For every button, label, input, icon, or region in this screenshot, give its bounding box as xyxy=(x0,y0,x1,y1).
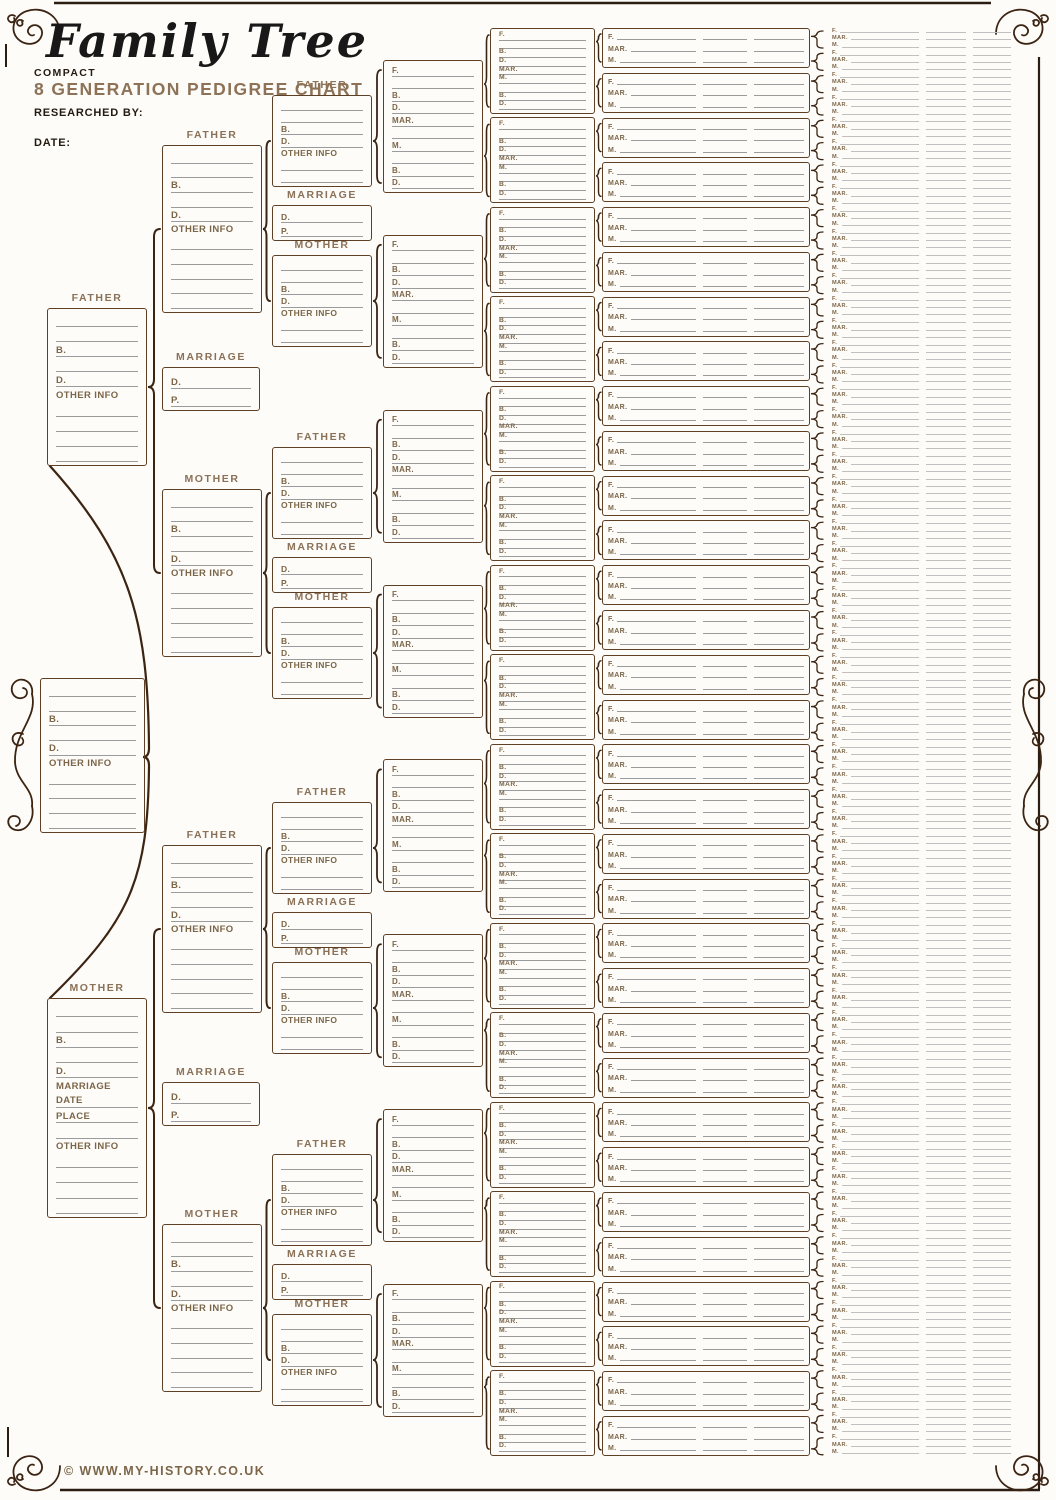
field-label: D. xyxy=(499,147,507,154)
field-line xyxy=(754,599,804,600)
field-label: F. xyxy=(832,654,837,660)
field-row: M. xyxy=(832,623,1011,630)
field-label: MAR. xyxy=(832,1309,848,1315)
field-row: MAR. xyxy=(832,571,1011,578)
field-line xyxy=(842,984,919,985)
field-row: F. xyxy=(832,810,1011,817)
field-line xyxy=(754,442,804,443)
field-line xyxy=(851,1067,919,1068)
field-row xyxy=(499,621,586,630)
field-label: D. xyxy=(499,595,507,602)
field-row xyxy=(392,426,474,439)
field-line xyxy=(842,404,919,405)
field-row: MAR. xyxy=(832,303,1011,310)
field-line xyxy=(703,554,747,555)
field-line xyxy=(973,613,1011,614)
field-line xyxy=(703,286,747,287)
field-row: F. xyxy=(832,1301,1011,1308)
field-line xyxy=(842,850,919,851)
field-line xyxy=(754,51,804,52)
field-label: MAR. xyxy=(499,335,518,342)
field-label: F. xyxy=(608,661,614,668)
field-label: MAR. xyxy=(832,1130,848,1136)
field-line xyxy=(617,800,696,801)
field-row: B. xyxy=(392,89,474,102)
field-line xyxy=(926,352,966,353)
field-line xyxy=(631,767,697,768)
field-row: D. xyxy=(392,626,474,639)
field-label: B. xyxy=(499,1302,507,1309)
field-line xyxy=(703,1349,747,1350)
field-line xyxy=(617,1024,696,1025)
field-line xyxy=(754,62,804,63)
field-label: F. xyxy=(832,185,837,191)
gen8-couple-entry: F.MAR.M. xyxy=(832,1278,1013,1300)
field-line xyxy=(631,409,697,410)
field-line xyxy=(973,1022,1011,1023)
field-line xyxy=(926,1297,966,1298)
field-row xyxy=(171,1243,253,1258)
field-label: MAR. xyxy=(608,1120,628,1127)
field-line xyxy=(926,635,966,636)
field-row xyxy=(281,878,363,890)
field-line xyxy=(973,426,1011,427)
field-label: MAR. xyxy=(499,1140,518,1147)
field-row: MAR. xyxy=(832,236,1011,243)
field-row: M. xyxy=(832,1092,1011,1099)
field-line xyxy=(926,702,966,703)
field-line xyxy=(973,151,1011,152)
field-line xyxy=(926,1334,966,1335)
field-row xyxy=(171,164,253,179)
field-label: F. xyxy=(832,1391,837,1397)
gen6-couple-box: F.B.D.MAR.M.B.D. xyxy=(490,654,595,740)
field-row: F. xyxy=(832,1256,1011,1263)
field-line xyxy=(754,152,804,153)
field-row: MAR. xyxy=(499,67,586,76)
field-line xyxy=(973,77,1011,78)
field-row: B. xyxy=(499,407,586,416)
field-label: MAR. xyxy=(832,58,848,64)
field-line xyxy=(973,605,1011,606)
field-label: B. xyxy=(499,1435,507,1442)
field-row: B. xyxy=(499,49,586,58)
field-line xyxy=(842,180,919,181)
gen4-father-box-title: FATHER xyxy=(260,787,384,798)
field-line xyxy=(617,174,696,175)
field-line xyxy=(754,857,804,858)
field-line xyxy=(842,627,919,628)
field-label: M. xyxy=(499,612,507,619)
field-line xyxy=(703,84,747,85)
field-line xyxy=(926,1044,966,1045)
researched-by-label: RESEARCHED BY: xyxy=(34,107,143,119)
field-line xyxy=(973,1260,1011,1261)
field-label: MAR. xyxy=(832,415,848,421)
field-line xyxy=(754,554,804,555)
field-line xyxy=(973,1453,1011,1454)
field-line xyxy=(840,121,919,122)
field-line xyxy=(973,1252,1011,1253)
field-label: D. xyxy=(281,213,290,222)
field-line xyxy=(973,307,1011,308)
field-row: MAR. xyxy=(499,425,586,434)
field-label: MAR. xyxy=(608,941,628,948)
gen6-couple-box: F.B.D.MAR.M.B.D. xyxy=(490,1281,595,1367)
gen8-couple-entry: F.MAR.M. xyxy=(832,95,1013,117)
field-label: F. xyxy=(832,564,837,570)
field-row: M. xyxy=(608,1352,804,1363)
field-label: F. xyxy=(832,631,837,637)
field-row: M. xyxy=(608,322,804,333)
field-line xyxy=(620,62,696,63)
field-label: M. xyxy=(832,1048,839,1054)
field-label: F. xyxy=(608,840,614,847)
field-line xyxy=(842,1185,919,1186)
field-row xyxy=(281,511,363,523)
field-line xyxy=(754,677,804,678)
field-row: M. xyxy=(832,1137,1011,1144)
field-row: F. xyxy=(832,229,1011,236)
field-label: OTHER INFO xyxy=(281,1208,337,1217)
field-row: B. xyxy=(499,987,586,996)
field-line xyxy=(973,1134,1011,1135)
field-line xyxy=(840,1260,919,1261)
field-row: MAR. xyxy=(832,817,1011,824)
field-label: M. xyxy=(832,847,839,853)
field-row xyxy=(281,1026,363,1038)
field-line xyxy=(703,465,747,466)
field-label: MAR. xyxy=(832,1041,848,1047)
field-line xyxy=(926,270,966,271)
field-label: B. xyxy=(499,765,507,772)
field-line xyxy=(703,185,747,186)
field-row: MAR. xyxy=(499,1319,586,1328)
field-line xyxy=(617,397,696,398)
field-line xyxy=(926,881,966,882)
field-label: F. xyxy=(832,319,837,325)
field-label: OTHER INFO xyxy=(281,309,337,318)
field-row: M. xyxy=(832,377,1011,384)
gen8-couple-entry: F.MAR.M. xyxy=(832,854,1013,876)
field-label: B. xyxy=(392,791,401,799)
field-label: B. xyxy=(281,125,290,134)
field-line xyxy=(754,84,804,85)
field-line xyxy=(926,1439,966,1440)
field-row: MAR. xyxy=(499,156,586,165)
field-label: MAR. xyxy=(832,527,848,533)
field-row: MAR. xyxy=(608,624,804,635)
field-label: MAR. xyxy=(392,1166,414,1174)
field-row xyxy=(171,936,253,951)
field-label: DATE xyxy=(56,1096,83,1106)
field-label: M. xyxy=(832,490,839,496)
field-row xyxy=(499,846,586,855)
field-line xyxy=(754,543,804,544)
field-row: MAR. xyxy=(392,639,474,652)
field-line xyxy=(973,1074,1011,1075)
field-line xyxy=(973,114,1011,115)
field-line xyxy=(926,203,966,204)
field-row xyxy=(392,152,474,165)
field-label: M. xyxy=(499,433,507,440)
field-line xyxy=(842,136,919,137)
field-line xyxy=(620,420,696,421)
field-label: D. xyxy=(281,565,290,574)
field-line xyxy=(973,1350,1011,1351)
field-line xyxy=(973,903,1011,904)
field-row xyxy=(392,651,474,664)
field-label: MAR. xyxy=(608,762,628,769)
field-line xyxy=(703,901,747,902)
field-line xyxy=(926,374,966,375)
field-line xyxy=(617,1114,696,1115)
field-line xyxy=(926,188,966,189)
field-row xyxy=(499,352,586,361)
field-label: MAR. xyxy=(392,816,414,824)
field-label: F. xyxy=(608,1109,614,1116)
field-line xyxy=(703,644,747,645)
field-line xyxy=(842,1342,919,1343)
field-label: F. xyxy=(832,274,837,280)
field-row: M. xyxy=(499,791,586,800)
field-line xyxy=(842,828,919,829)
field-line xyxy=(926,1394,966,1395)
field-line xyxy=(926,895,966,896)
field-row: B. xyxy=(499,272,586,281)
field-line xyxy=(926,62,966,63)
field-label: M. xyxy=(499,344,507,351)
gen6-couple-box: F.B.D.MAR.M.B.D. xyxy=(490,833,595,919)
field-line xyxy=(842,672,919,673)
field-line xyxy=(926,337,966,338)
field-row: F. xyxy=(608,434,804,445)
field-line xyxy=(926,747,966,748)
field-line xyxy=(754,1024,804,1025)
field-label: B. xyxy=(392,1315,401,1323)
field-line xyxy=(926,873,966,874)
field-row: M. xyxy=(832,578,1011,585)
field-line xyxy=(840,345,919,346)
field-row: MAR. xyxy=(832,102,1011,109)
field-line xyxy=(851,866,919,867)
field-line xyxy=(926,1171,966,1172)
field-label: F. xyxy=(832,252,837,258)
field-line xyxy=(926,307,966,308)
field-label: F. xyxy=(832,453,837,459)
field-line xyxy=(851,106,919,107)
field-line xyxy=(926,680,966,681)
field-line xyxy=(926,1312,966,1313)
field-row: M. xyxy=(832,846,1011,853)
field-line xyxy=(973,754,1011,755)
field-line xyxy=(851,531,919,532)
field-label: MAR. xyxy=(832,103,848,109)
field-line xyxy=(973,657,1011,658)
field-line xyxy=(620,107,696,108)
field-line xyxy=(851,374,919,375)
field-row xyxy=(499,935,586,944)
field-row: M. xyxy=(608,994,804,1005)
field-line xyxy=(973,1051,1011,1052)
field-line xyxy=(703,1360,747,1361)
field-line xyxy=(754,1226,804,1227)
field-line xyxy=(842,560,919,561)
field-row: MAR. xyxy=(832,884,1011,891)
field-row: F. xyxy=(608,1374,804,1385)
field-line xyxy=(703,1338,747,1339)
field-line xyxy=(620,734,696,735)
field-line xyxy=(973,412,1011,413)
gen3-father-box: B.D.OTHER INFO xyxy=(162,145,262,313)
field-label: MAR. xyxy=(499,1319,518,1326)
field-label: M. xyxy=(832,1204,839,1210)
field-row: F. xyxy=(499,479,586,488)
field-label: M. xyxy=(608,1311,617,1318)
field-label: MAR. xyxy=(608,270,628,277)
field-row: M. xyxy=(608,1039,804,1050)
field-label: MAR. xyxy=(832,840,848,846)
field-row: MAR. xyxy=(832,58,1011,65)
field-row: F. xyxy=(832,1078,1011,1085)
field-line xyxy=(926,1059,966,1060)
field-label: D. xyxy=(392,1228,401,1236)
gen8-couple-entry: F.MAR.M. xyxy=(832,944,1013,966)
field-row xyxy=(281,171,363,183)
field-line xyxy=(926,47,966,48)
field-row xyxy=(499,1293,586,1302)
gen8-couple-entry: F.MAR.M. xyxy=(832,1301,1013,1323)
field-label: B. xyxy=(499,719,507,726)
field-line xyxy=(754,409,804,410)
field-line xyxy=(973,850,1011,851)
field-line xyxy=(851,1022,919,1023)
field-label: MAR. xyxy=(392,1340,414,1348)
field-line xyxy=(840,590,919,591)
field-label: B. xyxy=(499,987,507,994)
field-row: F. xyxy=(832,1122,1011,1129)
field-label: B. xyxy=(499,1212,507,1219)
field-line xyxy=(703,588,747,589)
page-title: Family Tree xyxy=(46,14,368,68)
field-line xyxy=(973,1067,1011,1068)
field-line xyxy=(926,1401,966,1402)
field-line xyxy=(973,515,1011,516)
field-line xyxy=(840,434,919,435)
field-line xyxy=(973,1201,1011,1202)
field-row: D. xyxy=(392,351,474,364)
field-row: B. xyxy=(499,139,586,148)
field-row: M. xyxy=(499,881,586,890)
field-label: M. xyxy=(832,155,839,161)
field-line xyxy=(840,166,919,167)
field-row: MAR. xyxy=(608,445,804,456)
field-row: F. xyxy=(832,966,1011,973)
chart-subtitle: 8 GENERATION PEDIGREE CHART xyxy=(34,79,363,100)
field-line xyxy=(973,456,1011,457)
field-label: M. xyxy=(499,791,507,798)
field-row: D. xyxy=(281,487,363,499)
field-row xyxy=(171,1272,253,1287)
field-label: B. xyxy=(499,93,507,100)
field-label: D. xyxy=(392,354,401,362)
gen8-couple-entry: F.MAR.M. xyxy=(832,1412,1013,1434)
field-row: F. xyxy=(499,837,586,846)
field-line xyxy=(973,761,1011,762)
field-row: F. xyxy=(608,837,804,848)
field-row: B. xyxy=(392,514,474,527)
field-line xyxy=(926,1342,966,1343)
field-line xyxy=(926,1082,966,1083)
field-row: M. xyxy=(608,860,804,871)
field-line xyxy=(926,1305,966,1306)
field-label: B. xyxy=(392,1390,401,1398)
field-line xyxy=(973,374,1011,375)
field-label: F. xyxy=(832,207,837,213)
gen7-couple-box: F.MAR.M. xyxy=(602,923,810,963)
field-row: B. xyxy=(499,719,586,728)
field-line xyxy=(973,1267,1011,1268)
field-label: F. xyxy=(832,788,837,794)
field-row xyxy=(171,950,253,965)
field-line xyxy=(754,532,804,533)
field-line xyxy=(851,1401,919,1402)
field-line xyxy=(842,1252,919,1253)
field-label: B. xyxy=(49,715,59,725)
field-row xyxy=(499,442,586,451)
field-line xyxy=(973,270,1011,271)
gen8-couple-entry: F.MAR.M. xyxy=(832,1435,1013,1457)
field-line xyxy=(703,420,747,421)
field-line xyxy=(703,397,747,398)
field-row: M. xyxy=(392,139,474,152)
gen2-mother-box: B.D.MARRIAGEDATEPLACEOTHER INFO xyxy=(47,998,147,1218)
field-line xyxy=(973,419,1011,420)
field-label: MAR. xyxy=(832,80,848,86)
field-line xyxy=(754,868,804,869)
gen6-couple-box: F.B.D.MAR.M.B.D. xyxy=(490,207,595,293)
field-label: MAR. xyxy=(832,951,848,957)
field-row: F. xyxy=(832,698,1011,705)
field-line xyxy=(754,1259,804,1260)
field-line xyxy=(851,1357,919,1358)
field-label: D. xyxy=(499,774,507,781)
field-line xyxy=(703,767,747,768)
field-line xyxy=(620,599,696,600)
field-line xyxy=(631,1304,697,1305)
field-row: MAR. xyxy=(832,1375,1011,1382)
field-label: F. xyxy=(832,832,837,838)
field-line xyxy=(840,456,919,457)
field-line xyxy=(703,1394,747,1395)
field-line xyxy=(851,1379,919,1380)
field-line xyxy=(754,487,804,488)
field-row: MAR. xyxy=(832,147,1011,154)
gen8-couple-entry: F.MAR.M. xyxy=(832,698,1013,720)
field-line xyxy=(754,230,804,231)
field-label: F. xyxy=(832,698,837,704)
field-row: B. xyxy=(281,123,363,135)
field-label: M. xyxy=(608,1087,617,1094)
field-label: M. xyxy=(608,1221,617,1228)
field-row xyxy=(499,889,586,898)
field-row: M. xyxy=(499,344,586,353)
field-line xyxy=(973,352,1011,353)
field-row: F. xyxy=(832,765,1011,772)
field-line xyxy=(851,508,919,509)
field-row: MAR. xyxy=(832,928,1011,935)
field-label: M. xyxy=(832,914,839,920)
